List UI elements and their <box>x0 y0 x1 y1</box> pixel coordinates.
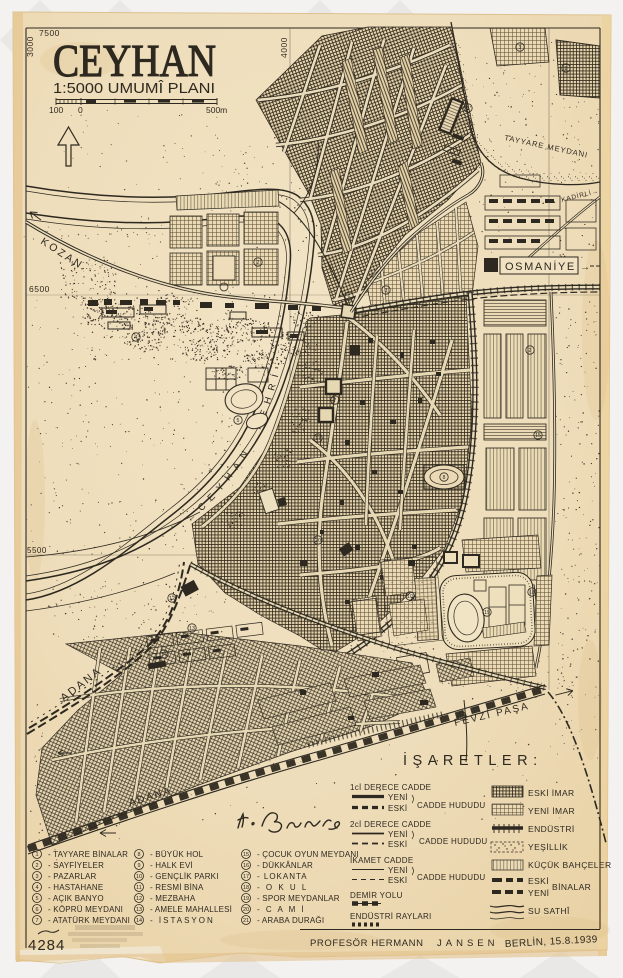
svg-text:1: 1 <box>35 852 38 858</box>
svg-text:3: 3 <box>385 288 388 294</box>
svg-text:6: 6 <box>348 294 351 300</box>
svg-text:CADDE HUDUDU: CADDE HUDUDU <box>417 873 486 882</box>
svg-text:20: 20 <box>243 907 249 913</box>
svg-text:ESKİ: ESKİ <box>528 876 549 886</box>
svg-text:16: 16 <box>459 714 465 720</box>
svg-text:14: 14 <box>136 918 142 924</box>
svg-text:12: 12 <box>136 896 142 902</box>
svg-text:5500: 5500 <box>27 546 47 555</box>
svg-text:ESKİ İMAR: ESKİ İMAR <box>528 788 575 798</box>
svg-text:4: 4 <box>35 885 38 891</box>
svg-text:4284: 4284 <box>28 937 65 954</box>
svg-text:18: 18 <box>529 590 535 596</box>
svg-text:6: 6 <box>35 907 38 913</box>
svg-text:7: 7 <box>334 398 337 404</box>
svg-text:19: 19 <box>484 610 490 616</box>
svg-text:- AÇIK BANYO: - AÇIK BANYO <box>48 894 104 903</box>
svg-text:- ARABA DURAĞI: - ARABA DURAĞI <box>257 916 324 925</box>
svg-text:1:5000 UMUMÎ PLANI: 1:5000 UMUMÎ PLANI <box>53 80 215 97</box>
svg-text:BİNALAR: BİNALAR <box>552 882 591 892</box>
svg-text:15: 15 <box>535 433 541 439</box>
svg-text:3000: 3000 <box>25 36 35 57</box>
svg-text:- TAYYARE BİNALAR: - TAYYARE BİNALAR <box>48 850 128 859</box>
svg-text:- HASTAHANE: - HASTAHANE <box>48 883 103 892</box>
svg-text:17: 17 <box>315 436 321 442</box>
svg-text:11: 11 <box>136 885 142 891</box>
svg-text:17: 17 <box>243 874 249 880</box>
svg-text:- C A M İ: - C A M İ <box>257 905 306 914</box>
svg-text:15: 15 <box>243 852 249 858</box>
svg-text:CEYHAN: CEYHAN <box>53 36 216 86</box>
svg-text:- BÜYÜK HOL: - BÜYÜK HOL <box>150 850 204 859</box>
svg-text:YENİ: YENİ <box>388 830 408 839</box>
svg-text:- SAYFİYELER: - SAYFİYELER <box>48 861 104 870</box>
svg-text:SU SATHÎ: SU SATHÎ <box>528 906 570 916</box>
svg-text:16: 16 <box>243 863 249 869</box>
svg-text:3: 3 <box>519 45 522 51</box>
svg-text:- SPOR MEYDANLAR: - SPOR MEYDANLAR <box>257 894 340 903</box>
svg-text:→: → <box>580 262 590 273</box>
svg-text:5: 5 <box>237 418 240 424</box>
svg-text:19: 19 <box>243 896 249 902</box>
svg-text:10: 10 <box>136 874 142 880</box>
svg-text:2cİ DERECE CADDE: 2cİ DERECE CADDE <box>350 820 431 829</box>
svg-text:2: 2 <box>35 863 38 869</box>
svg-text:- ÇOCUK OYUN MEYDANI: - ÇOCUK OYUN MEYDANI <box>257 850 359 859</box>
svg-text:8: 8 <box>443 475 446 481</box>
svg-text:13: 13 <box>136 907 142 913</box>
svg-text:2: 2 <box>565 66 568 72</box>
svg-text:21: 21 <box>243 918 249 924</box>
svg-text:YENİ: YENİ <box>388 866 408 875</box>
svg-text:8: 8 <box>137 852 140 858</box>
svg-text:0: 0 <box>78 105 83 115</box>
svg-text:YENİ: YENİ <box>528 888 549 898</box>
svg-text:OSMANİYE: OSMANİYE <box>505 260 576 273</box>
svg-text:5: 5 <box>35 896 38 902</box>
svg-text:- LOKANTA: - LOKANTA <box>257 872 308 881</box>
svg-text:2: 2 <box>257 260 260 266</box>
svg-text:10: 10 <box>407 594 413 600</box>
svg-text:18: 18 <box>243 885 249 891</box>
svg-text:CADDE HUDUDU: CADDE HUDUDU <box>417 801 486 810</box>
svg-text:9: 9 <box>137 863 140 869</box>
svg-text:- DÜKKÂNLAR: - DÜKKÂNLAR <box>257 861 313 870</box>
svg-text:4: 4 <box>135 335 138 341</box>
svg-text:2: 2 <box>529 348 532 354</box>
svg-text:7: 7 <box>35 918 38 924</box>
svg-text:YENİ: YENİ <box>388 793 408 802</box>
svg-text:100: 100 <box>49 105 63 115</box>
svg-text:6500: 6500 <box>29 284 50 294</box>
svg-text:- PAZARLAR: - PAZARLAR <box>48 872 97 881</box>
svg-text:500m: 500m <box>206 105 227 115</box>
svg-text:YEŞİLLİK: YEŞİLLİK <box>528 842 568 852</box>
svg-text:14: 14 <box>161 652 167 658</box>
svg-text:- O K U L: - O K U L <box>257 883 308 892</box>
svg-text:13: 13 <box>189 626 195 632</box>
svg-text:20: 20 <box>315 538 321 544</box>
svg-text:JANSEN: JANSEN <box>437 938 498 949</box>
svg-text:İŞARETLER:: İŞARETLER: <box>403 751 543 769</box>
svg-text:- MEZBAHA: - MEZBAHA <box>150 894 196 903</box>
svg-text:9: 9 <box>354 348 357 354</box>
svg-text:ESKİ: ESKİ <box>388 876 407 885</box>
svg-text:12: 12 <box>169 596 175 602</box>
svg-text:ENDÜSTRİ: ENDÜSTRİ <box>528 824 575 834</box>
svg-text:ESKİ: ESKİ <box>388 804 407 813</box>
svg-text:3: 3 <box>35 874 38 880</box>
svg-text:PROFESÖR HERMANN: PROFESÖR HERMANN <box>310 938 424 949</box>
svg-text:- RESMİ BİNA: - RESMİ BİNA <box>150 883 204 892</box>
svg-text:- HALK EVİ: - HALK EVİ <box>150 861 193 870</box>
svg-text:1: 1 <box>467 106 470 112</box>
svg-text:- İSTASYON: - İSTASYON <box>150 916 215 925</box>
svg-text:- AMELE MAHALLESİ: - AMELE MAHALLESİ <box>150 905 232 914</box>
svg-text:CADDE HUDUDU: CADDE HUDUDU <box>419 837 488 846</box>
svg-text:ESKİ: ESKİ <box>388 840 407 849</box>
svg-text:1cİ DERECE CADDE: 1cİ DERECE CADDE <box>350 783 431 792</box>
svg-text:- GENÇLİK PARKI: - GENÇLİK PARKI <box>150 872 219 881</box>
svg-text:ENDÜSTRİ RAYLARI: ENDÜSTRİ RAYLARI <box>350 912 432 921</box>
svg-text:KÜÇÜK BAHÇELER: KÜÇÜK BAHÇELER <box>528 860 612 870</box>
svg-text:- ATATÜRK MEYDANI: - ATATÜRK MEYDANI <box>48 916 130 925</box>
svg-text:DEMİR YOLU: DEMİR YOLU <box>350 891 403 900</box>
svg-text:4000: 4000 <box>279 37 289 58</box>
svg-text:YENİ İMAR: YENİ İMAR <box>528 806 575 816</box>
svg-text:- KÖPRÜ MEYDANI: - KÖPRÜ MEYDANI <box>48 905 123 914</box>
svg-text:İKAMET CADDE: İKAMET CADDE <box>350 856 413 865</box>
